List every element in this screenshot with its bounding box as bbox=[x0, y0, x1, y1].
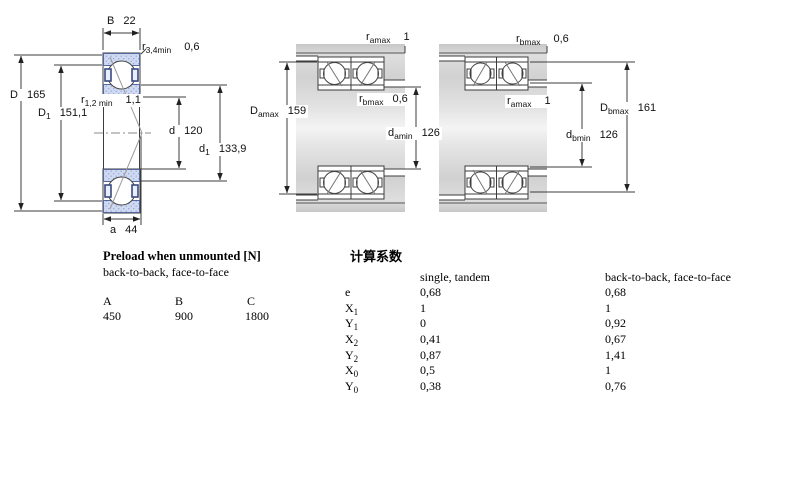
dim-label-Dbmax: Dbmax161 bbox=[598, 102, 658, 115]
dim-label-dbmin: dbmin126 bbox=[564, 129, 620, 142]
dim-label-rbmax-mid: rbmax0,6 bbox=[357, 93, 410, 106]
preload-value-a: 450 bbox=[103, 310, 121, 323]
factors-row-y0: Y00,380,76 bbox=[345, 379, 626, 395]
dim-label-d1: d1133,9 bbox=[197, 143, 248, 156]
preload-value-b: 900 bbox=[175, 310, 193, 323]
dim-label-D1: D1151,1 bbox=[36, 107, 89, 120]
factors-row-y2: Y20,871,41 bbox=[345, 348, 626, 364]
preload-col-b: B bbox=[175, 295, 183, 308]
dim-label-B: B22 bbox=[107, 15, 136, 27]
factors-row-e: e0,680,68 bbox=[345, 285, 626, 301]
right-figure bbox=[439, 44, 635, 212]
factors-row-y1: Y100,92 bbox=[345, 316, 626, 332]
left-bearing-section bbox=[94, 53, 151, 213]
preload-title: Preload when unmounted [N] bbox=[103, 250, 261, 263]
dim-label-a: a44 bbox=[110, 224, 137, 236]
preload-col-a: A bbox=[103, 295, 112, 308]
dim-label-d: d120 bbox=[167, 125, 204, 137]
dim-label-r12min: r1,2 min1,1 bbox=[79, 94, 143, 107]
factors-title: 计算系数 bbox=[350, 250, 402, 263]
factors-col1-header: single, tandem bbox=[420, 271, 490, 284]
preload-value-c: 1800 bbox=[245, 310, 269, 323]
dim-label-r34min: r3,4min0,6 bbox=[142, 41, 199, 54]
factors-row-x1: X111 bbox=[345, 301, 626, 317]
dim-label-damin: damin126 bbox=[386, 127, 442, 140]
bearing-datasheet: B22 r3,4min0,6 D165 r1,2 min1,1 D1151,1 … bbox=[0, 0, 800, 500]
factors-row-x0: X00,51 bbox=[345, 363, 626, 379]
preload-subtitle: back-to-back, face-to-face bbox=[103, 266, 229, 279]
dim-label-ramax-top: ramax1 bbox=[366, 31, 410, 44]
factors-row-x2: X20,410,67 bbox=[345, 332, 626, 348]
factors-table: e0,680,68 X111 Y100,92 X20,410,67 Y20,87… bbox=[345, 285, 626, 395]
dim-label-D: D165 bbox=[8, 89, 47, 101]
dim-label-rbmax-top: rbmax0,6 bbox=[516, 33, 569, 46]
preload-col-c: C bbox=[247, 295, 255, 308]
dim-label-ramax-right: ramax1 bbox=[505, 95, 553, 108]
dim-label-Damax: Damax159 bbox=[248, 105, 308, 118]
factors-col2-header: back-to-back, face-to-face bbox=[605, 271, 731, 284]
